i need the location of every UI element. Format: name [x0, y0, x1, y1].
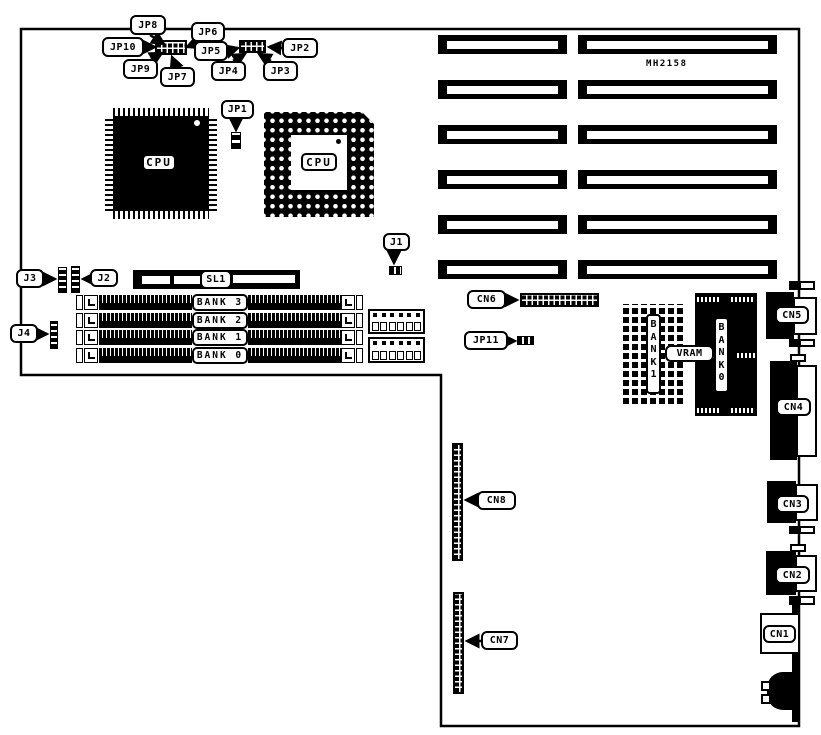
expansion-slot	[438, 260, 567, 279]
simm-socket-bank1: BANK 1	[76, 330, 364, 345]
bank0-vertical-label: BANK0	[714, 317, 729, 393]
pga-cpu-label: CPU	[301, 153, 337, 171]
callout-jp5: JP5	[194, 41, 228, 61]
pga-cpu-socket: CPU	[264, 112, 374, 217]
simm-endcap	[356, 295, 363, 310]
simm-latch	[84, 313, 98, 328]
bank1-vertical-label: BANK1	[646, 314, 661, 394]
simm-latch	[341, 330, 355, 345]
j3-jumper-strip	[58, 267, 67, 293]
expansion-slot	[438, 80, 567, 99]
qfp-pins-left	[105, 117, 113, 211]
edge-tab	[789, 596, 799, 605]
edge-tab	[799, 596, 815, 605]
bank0-label: BANK 0	[192, 347, 248, 364]
pga-pin1-dot	[336, 139, 341, 144]
expansion-slot	[578, 35, 777, 54]
simm-contacts	[99, 295, 192, 310]
simm-latch	[341, 348, 355, 363]
callout-j4: J4	[10, 324, 38, 343]
simm-socket-bank0: BANK 0	[76, 348, 364, 363]
power-connector	[368, 309, 425, 334]
callout-cn8: CN8	[477, 491, 516, 510]
speaker-notch	[761, 694, 771, 704]
callout-jp1: JP1	[221, 100, 254, 119]
simm-contacts	[99, 313, 192, 328]
expansion-slot	[578, 125, 777, 144]
sl1-window	[233, 275, 295, 283]
edge-tab	[799, 526, 815, 534]
simm-endcap	[76, 295, 83, 310]
bank1-label: BANK 1	[192, 329, 248, 346]
edge-tab	[799, 339, 815, 347]
simm-contacts	[248, 330, 341, 345]
callout-cn4: CN4	[776, 398, 811, 416]
power-connector	[368, 337, 425, 363]
edge-tab	[799, 281, 815, 290]
callout-cn3: CN3	[776, 495, 809, 513]
qfp-pin1-dot	[194, 120, 200, 126]
simm-contacts	[99, 330, 192, 345]
j4-jumper-strip	[50, 321, 58, 349]
callout-jp3: JP3	[263, 61, 298, 81]
simm-latch	[341, 313, 355, 328]
edge-tab	[790, 354, 806, 362]
callout-jp8: JP8	[130, 15, 166, 35]
callout-cn1: CN1	[763, 625, 796, 643]
bank3-label: BANK 3	[192, 294, 248, 311]
callout-jp10: JP10	[102, 37, 144, 57]
simm-endcap	[356, 348, 363, 363]
simm-latch	[341, 295, 355, 310]
jp11-jumper	[517, 336, 534, 345]
simm-latch	[84, 295, 98, 310]
qfp-pins-top	[113, 108, 209, 116]
simm-endcap	[76, 313, 83, 328]
j1-jumper	[389, 266, 402, 275]
expansion-slot	[578, 260, 777, 279]
jumper-block-b	[239, 40, 266, 53]
callout-vram: VRAM	[665, 345, 714, 362]
speaker-connector	[767, 672, 800, 710]
edge-tab	[790, 544, 806, 552]
edge-tab	[789, 281, 799, 290]
callout-jp7: JP7	[160, 67, 195, 87]
cn8-pin-header	[452, 443, 463, 561]
qfp-cpu-label: CPU	[142, 154, 176, 171]
simm-latch	[84, 348, 98, 363]
cn7-pin-header	[453, 592, 464, 694]
edge-tab	[789, 339, 799, 347]
callout-jp4: JP4	[211, 61, 246, 81]
jumper-block-a	[155, 40, 187, 55]
qfp-pins-bottom	[113, 211, 209, 219]
callout-j2: J2	[90, 269, 118, 287]
simm-socket-bank3: BANK 3	[76, 295, 364, 310]
edge-tab	[789, 526, 799, 534]
callout-jp2: JP2	[282, 38, 318, 58]
sl1-window	[142, 276, 170, 284]
callout-cn6: CN6	[467, 290, 506, 309]
simm-endcap	[356, 330, 363, 345]
callout-jp6: JP6	[191, 22, 225, 42]
callout-j3: J3	[16, 269, 44, 288]
expansion-slot	[578, 80, 777, 99]
cn6-pin-header	[520, 293, 599, 307]
qfp-cpu-chip: CPU	[113, 116, 209, 211]
simm-contacts	[248, 313, 341, 328]
expansion-slot	[578, 215, 777, 234]
simm-socket-bank2: BANK 2	[76, 313, 364, 328]
simm-contacts	[248, 295, 341, 310]
expansion-slot	[438, 215, 567, 234]
speaker-notch	[761, 681, 771, 691]
simm-endcap	[356, 313, 363, 328]
sl1-window	[174, 276, 200, 284]
j2-jumper-strip	[71, 266, 80, 293]
callout-jp11: JP11	[464, 331, 508, 350]
callout-j1: J1	[383, 233, 410, 251]
jp1-jumper	[231, 132, 241, 149]
expansion-slot	[438, 35, 567, 54]
simm-endcap	[76, 348, 83, 363]
callout-sl1: SL1	[200, 270, 232, 289]
callout-cn5: CN5	[775, 306, 809, 324]
expansion-slot	[578, 170, 777, 189]
callout-cn7: CN7	[481, 631, 518, 650]
expansion-slot	[438, 170, 567, 189]
simm-contacts	[99, 348, 192, 363]
simm-endcap	[76, 330, 83, 345]
expansion-slot	[438, 125, 567, 144]
qfp-pins-right	[209, 117, 217, 211]
board-model-text: MH2158	[646, 59, 688, 69]
simm-contacts	[248, 348, 341, 363]
callout-jp9: JP9	[123, 59, 158, 79]
bank2-label: BANK 2	[192, 312, 248, 329]
callout-cn2: CN2	[775, 566, 810, 584]
motherboard-diagram: MH2158 CPU CPU BANK 3 BANK 2	[0, 0, 821, 735]
simm-latch	[84, 330, 98, 345]
